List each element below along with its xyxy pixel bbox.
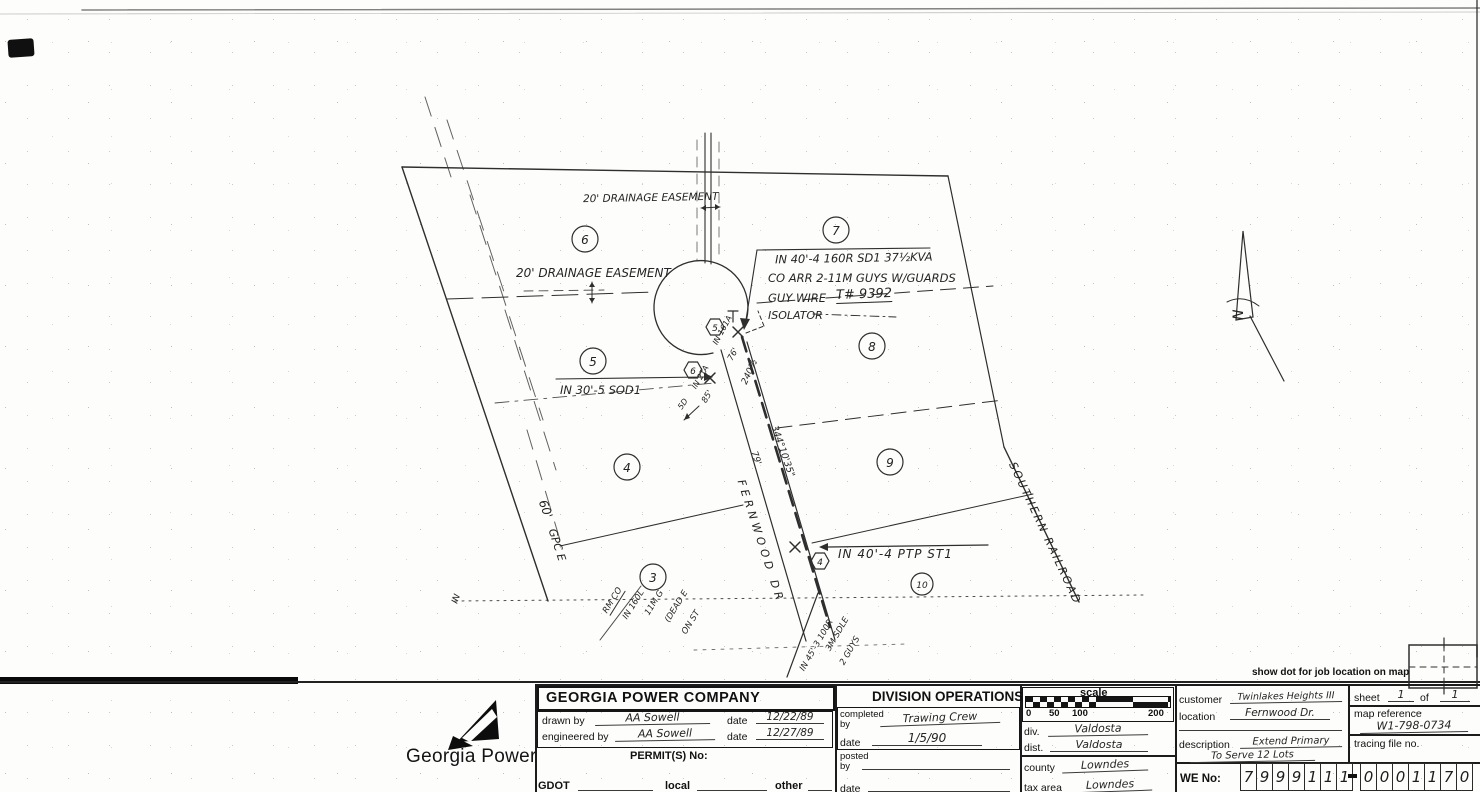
arrowhead bbox=[715, 204, 720, 210]
date-label: date bbox=[840, 737, 860, 749]
note-leader bbox=[746, 250, 757, 320]
construction-note-line3: GUY WIRE bbox=[768, 291, 826, 305]
boundary-top bbox=[402, 167, 948, 176]
dist-value: Valdosta bbox=[1050, 738, 1148, 752]
engineered-by-label: engineered by bbox=[542, 731, 609, 743]
we-digit: 0 bbox=[1393, 763, 1409, 791]
boundary-left bbox=[402, 167, 548, 601]
drainage-easement-horizontal bbox=[447, 292, 654, 299]
guy-dash bbox=[758, 311, 764, 326]
division-header: DIVISION OPERATIONS bbox=[872, 689, 1023, 704]
tb-border bbox=[1348, 686, 1350, 762]
company-name: GEORGIA POWER COMPANY bbox=[539, 688, 833, 706]
scanned-drawing-sheet: 6 7 5 8 4 9 3 10 5 6 4 20' DRAINAGE EASE… bbox=[0, 0, 1480, 792]
arrowhead bbox=[684, 413, 690, 420]
sheet-value: 1 bbox=[1388, 688, 1414, 702]
local-label: local bbox=[665, 780, 690, 792]
location-value: Fernwood Dr. bbox=[1230, 707, 1330, 720]
gdot-blank bbox=[578, 780, 653, 791]
lot-number: 7 bbox=[832, 224, 840, 238]
we-no-label: WE No: bbox=[1180, 773, 1221, 785]
other-label: other bbox=[775, 780, 803, 792]
we-digit: 0 bbox=[1360, 763, 1377, 791]
we-digit: 9 bbox=[1257, 763, 1273, 791]
map-reference-value: W1-798-0734 bbox=[1360, 718, 1468, 734]
easement-label-top: 20' DRAINAGE EASEMENT bbox=[583, 191, 719, 205]
drawn-by-value: AA Sowell bbox=[595, 710, 710, 726]
sod-note: IN 30'-5 SOD1 bbox=[560, 383, 641, 397]
ptp-arrowhead bbox=[819, 543, 828, 551]
we-digit: 0 bbox=[1377, 763, 1393, 791]
boundary-bottom-dotted bbox=[455, 595, 1143, 601]
date-label: date bbox=[727, 715, 747, 727]
customer-value: Twinlakes Heights III bbox=[1230, 690, 1342, 704]
georgia-power-logo-text: Georgia Power bbox=[406, 746, 537, 768]
lot-line-8-9 bbox=[777, 400, 1003, 428]
scale-tick: 200 bbox=[1148, 708, 1164, 719]
tax-area-value: Lowndes bbox=[1068, 777, 1152, 792]
lot-number: 8 bbox=[868, 340, 876, 354]
easement-dashed-lines bbox=[425, 97, 560, 540]
location-label: location bbox=[1179, 711, 1215, 723]
posted-date-blank bbox=[868, 783, 1010, 792]
georgia-power-logo-mark bbox=[400, 694, 540, 754]
show-dot-note: show dot for job location on map bbox=[1252, 667, 1409, 678]
company-header-box: GEORGIA POWER COMPANY bbox=[537, 686, 835, 711]
permits-label: PERMIT(S) No: bbox=[630, 750, 708, 762]
we-no-group1: 7 9 9 9 1 1 1 bbox=[1240, 763, 1353, 791]
we-dash bbox=[1348, 774, 1357, 778]
lot-line-9-10 bbox=[812, 494, 1033, 543]
tb-border bbox=[1348, 705, 1480, 707]
scale-tick: 50 bbox=[1049, 708, 1060, 719]
we-digit: 7 bbox=[1441, 763, 1457, 791]
arrowhead bbox=[701, 205, 706, 211]
blank-rule bbox=[1179, 730, 1342, 731]
posted-by-label: by bbox=[840, 761, 850, 772]
we-digit: 1 bbox=[1409, 763, 1425, 791]
description-value2: To Serve 12 Lots bbox=[1190, 749, 1315, 763]
completed-date-value: 1/5/90 bbox=[872, 731, 982, 746]
local-blank bbox=[697, 780, 767, 791]
job-location-box bbox=[1409, 638, 1477, 694]
road-edge-left bbox=[721, 350, 806, 641]
ptp-note: IN 40'-4 PTP ST1 bbox=[838, 547, 953, 561]
tracing-file-label: tracing file no. bbox=[1354, 738, 1419, 750]
we-digit: 9 bbox=[1289, 763, 1305, 791]
scan-artifact-line bbox=[0, 12, 1480, 14]
north-label: N bbox=[1231, 310, 1247, 320]
posted-by-blank bbox=[862, 761, 1010, 770]
scale-tick: 0 bbox=[1026, 708, 1031, 719]
we-digit: 7 bbox=[1240, 763, 1257, 791]
lot-number: 5 bbox=[589, 355, 597, 369]
description-label: description bbox=[1179, 739, 1230, 751]
titleblock-top-rule bbox=[0, 681, 1480, 683]
sheet-of-label: of bbox=[1420, 692, 1429, 704]
scan-artifact-line bbox=[82, 8, 1480, 10]
lot-number: 9 bbox=[886, 456, 894, 470]
lot-line-4-3 bbox=[560, 505, 743, 546]
scale-bar bbox=[1025, 696, 1171, 708]
tb-border bbox=[1020, 755, 1175, 757]
tax-area-label: tax area bbox=[1024, 782, 1062, 792]
sheet-label: sheet bbox=[1354, 692, 1380, 704]
lot-number: 6 bbox=[581, 233, 589, 247]
scan-blob bbox=[7, 38, 34, 58]
north-arrow bbox=[1227, 231, 1284, 381]
date-label: date bbox=[840, 783, 860, 792]
customer-label: customer bbox=[1179, 694, 1222, 706]
guy-dash bbox=[746, 326, 764, 333]
transformer-number: T# 9392 bbox=[836, 286, 893, 304]
tb-border bbox=[1175, 684, 1177, 792]
we-digit: 1 bbox=[1305, 763, 1321, 791]
construction-note-line2: CO ARR 2-11M GUYS W/GUARDS bbox=[768, 271, 956, 285]
isolator-label: ISOLATOR bbox=[768, 309, 823, 322]
div-label: div. bbox=[1024, 726, 1040, 738]
completed-by-label2: by bbox=[840, 719, 850, 730]
eng-date-value: 12/27/89 bbox=[756, 727, 824, 740]
description-value1: Extend Primary bbox=[1240, 735, 1342, 749]
we-digit: 1 bbox=[1425, 763, 1441, 791]
lot-number: 10 bbox=[916, 581, 928, 591]
div-value: Valdosta bbox=[1048, 721, 1148, 737]
lot-number: 4 bbox=[623, 461, 631, 475]
drawn-by-label: drawn by bbox=[542, 715, 585, 727]
pole-number: 4 bbox=[817, 558, 823, 568]
road-edge-right bbox=[747, 342, 835, 640]
we-digit: 0 bbox=[1457, 763, 1473, 791]
we-digit: 9 bbox=[1273, 763, 1289, 791]
scale-tick: 100 bbox=[1072, 708, 1088, 719]
isolator-dash bbox=[813, 314, 896, 317]
sheet-total-value: 1 bbox=[1440, 688, 1470, 702]
county-label: county bbox=[1024, 762, 1055, 774]
lot-number: 3 bbox=[649, 571, 657, 585]
sod-arrow-line bbox=[556, 377, 704, 379]
boundary-right bbox=[948, 176, 1004, 447]
construction-note-line1: IN 40'-4 160R SD1 37½KVA bbox=[775, 250, 933, 267]
date-label: date bbox=[727, 731, 747, 743]
easement-label-left: 20' DRAINAGE EASEMENT bbox=[516, 266, 671, 280]
gdot-label: GDOT bbox=[538, 780, 570, 792]
we-no-group2: 0 0 0 1 1 7 0 bbox=[1360, 763, 1473, 791]
arrowhead bbox=[589, 282, 595, 287]
primary-line bbox=[742, 337, 830, 627]
engineered-by-value: AA Sowell bbox=[615, 726, 715, 742]
county-value: Lowndes bbox=[1062, 757, 1148, 774]
tb-border bbox=[1348, 734, 1480, 736]
road-bottom-dashes bbox=[694, 644, 906, 650]
we-digit: 1 bbox=[1321, 763, 1337, 791]
arrowhead bbox=[589, 298, 595, 303]
other-blank bbox=[808, 780, 832, 791]
drawn-date-value: 12/22/89 bbox=[756, 711, 824, 724]
dist-label: dist. bbox=[1024, 742, 1043, 754]
